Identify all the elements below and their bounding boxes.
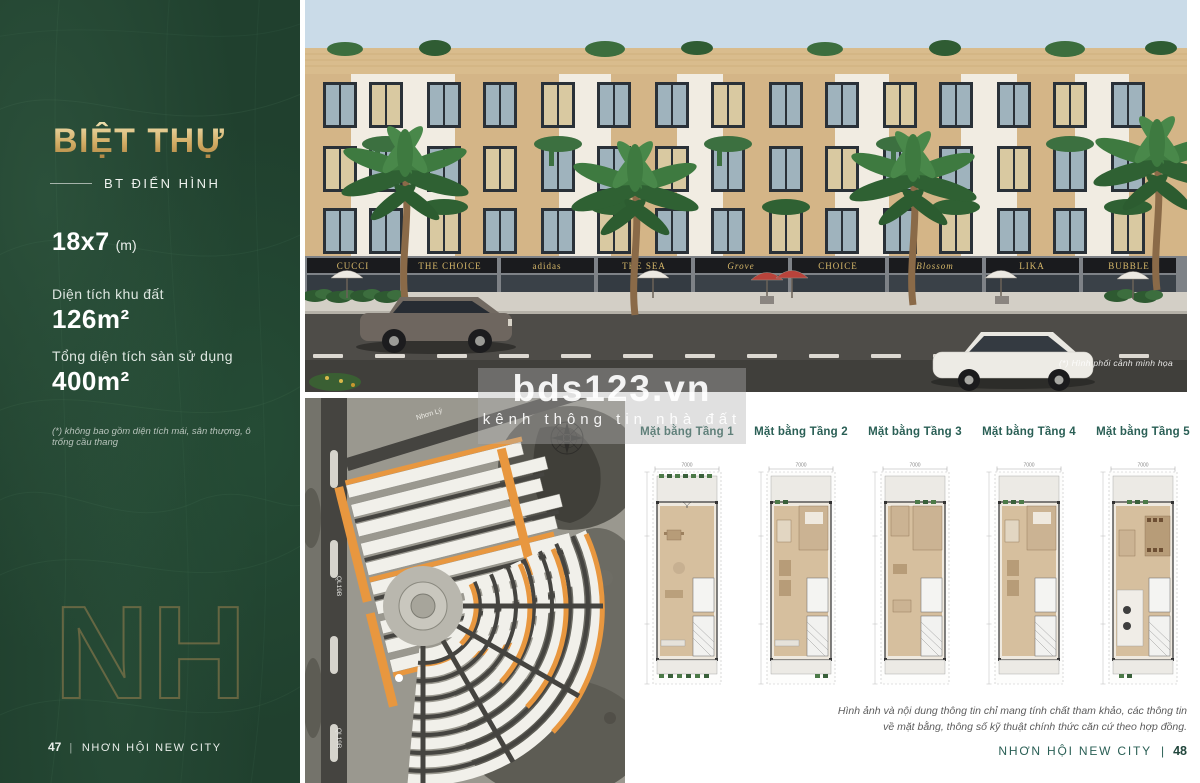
- plan-dim: 7000: [1023, 463, 1034, 469]
- page-subtitle: BT ĐIỂN HÌNH: [104, 176, 220, 191]
- roadside-plants: [309, 373, 361, 391]
- floorplan-3: 7000: [858, 460, 972, 696]
- page-title: BIỆT THỰ: [53, 122, 225, 161]
- masterplan-illustration: Nhơn Lý QL19B QL19B: [305, 398, 625, 783]
- sidebar-footer: 47|NHƠN HỘI NEW CITY: [48, 740, 222, 754]
- area-footnote: (*) không bao gồm diện tích mái, sân thư…: [52, 426, 272, 448]
- nh-monogram-logo: NH: [48, 566, 278, 726]
- project-name: NHƠN HỘI NEW CITY: [998, 744, 1152, 758]
- floorplan-label-5: Mặt bằng Tầng 5: [1086, 426, 1200, 444]
- disclaimer: Hình ảnh và nội dung thông tin chỉ mang …: [747, 704, 1187, 736]
- subtitle-row: BT ĐIỂN HÌNH: [50, 176, 220, 191]
- floor-area-value: 400m²: [52, 366, 130, 397]
- shop-sign: CHOICE: [818, 261, 858, 271]
- lot-size: 18x7(m): [52, 228, 137, 257]
- road-label-ql19b: QL19B: [335, 728, 342, 748]
- right-page-number: 48: [1173, 744, 1187, 758]
- shop-fronts: CUCCI THE CHOICE adidas THE SEA Grove CH…: [307, 258, 1176, 292]
- land-area-label: Diện tích khu đất: [52, 286, 164, 302]
- shop-sign: adidas: [533, 261, 562, 271]
- subtitle-dash: [50, 183, 92, 184]
- footer-separator: |: [69, 742, 73, 754]
- compass-icon: [551, 422, 583, 454]
- plan-dim: 7000: [795, 463, 806, 469]
- lot-size-value: 18x7: [52, 228, 110, 256]
- floorplan-label-4: Mặt bằng Tầng 4: [972, 426, 1086, 444]
- render-illustration: CUCCI THE CHOICE adidas THE SEA Grove CH…: [305, 0, 1187, 392]
- right-footer: NHƠN HỘI NEW CITY|48: [998, 744, 1187, 758]
- road-label-ql19b: QL19B: [335, 576, 342, 596]
- land-area-value: 126m²: [52, 304, 130, 335]
- shop-sign: CUCCI: [337, 261, 370, 271]
- project-name: NHƠN HỘI NEW CITY: [82, 742, 222, 754]
- nh-monogram-text: NH: [54, 579, 249, 726]
- plan-dim: 7000: [909, 463, 920, 469]
- floorplan-label-1: Mặt bằng Tầng 1: [630, 426, 744, 444]
- shop-sign: BUBBLE: [1108, 261, 1150, 271]
- shop-sign: THE SEA: [622, 261, 666, 271]
- building-render: CUCCI THE CHOICE adidas THE SEA Grove CH…: [305, 0, 1187, 392]
- plan-dim: 7000: [1137, 463, 1148, 469]
- floorplan-label-2: Mặt bằng Tầng 2: [744, 426, 858, 444]
- plan-dim: 7000: [681, 463, 692, 469]
- brochure-page: BIỆT THỰ BT ĐIỂN HÌNH 18x7(m) Diện tích …: [0, 0, 1200, 783]
- floorplan-1: 7000: [630, 460, 744, 696]
- disclaimer-line-2: về mặt bằng, thông số kỹ thuật chính thứ…: [883, 721, 1187, 733]
- disclaimer-line-1: Hình ảnh và nội dung thông tin chỉ mang …: [838, 705, 1187, 717]
- sidebar: BIỆT THỰ BT ĐIỂN HÌNH 18x7(m) Diện tích …: [0, 0, 300, 783]
- lot-size-unit: (m): [116, 237, 137, 253]
- shop-sign: LIKA: [1019, 261, 1045, 271]
- floorplan-4: 7000: [972, 460, 1086, 696]
- shop-sign: Grove: [727, 261, 754, 271]
- floor-area-label: Tổng diện tích sàn sử dụng: [52, 348, 233, 364]
- shop-sign: THE CHOICE: [418, 261, 481, 271]
- render-caption: (*) Hình phối cảnh minh họa: [1059, 358, 1173, 368]
- shop-sign: Blossom: [916, 261, 954, 271]
- floorplan-labels: Mặt bằng Tầng 1 Mặt bằng Tầng 2 Mặt bằng…: [630, 426, 1200, 444]
- footer-separator: |: [1161, 744, 1164, 758]
- floorplan-5: 7000: [1086, 460, 1200, 696]
- left-page-number: 47: [48, 740, 61, 754]
- floorplan-label-3: Mặt bằng Tầng 3: [858, 426, 972, 444]
- windows: [323, 82, 1145, 254]
- floorplan-2: 7000: [744, 460, 858, 696]
- floorplan-thumbnails: 7000: [630, 460, 1200, 696]
- masterplan-map: Nhơn Lý QL19B QL19B: [305, 398, 625, 783]
